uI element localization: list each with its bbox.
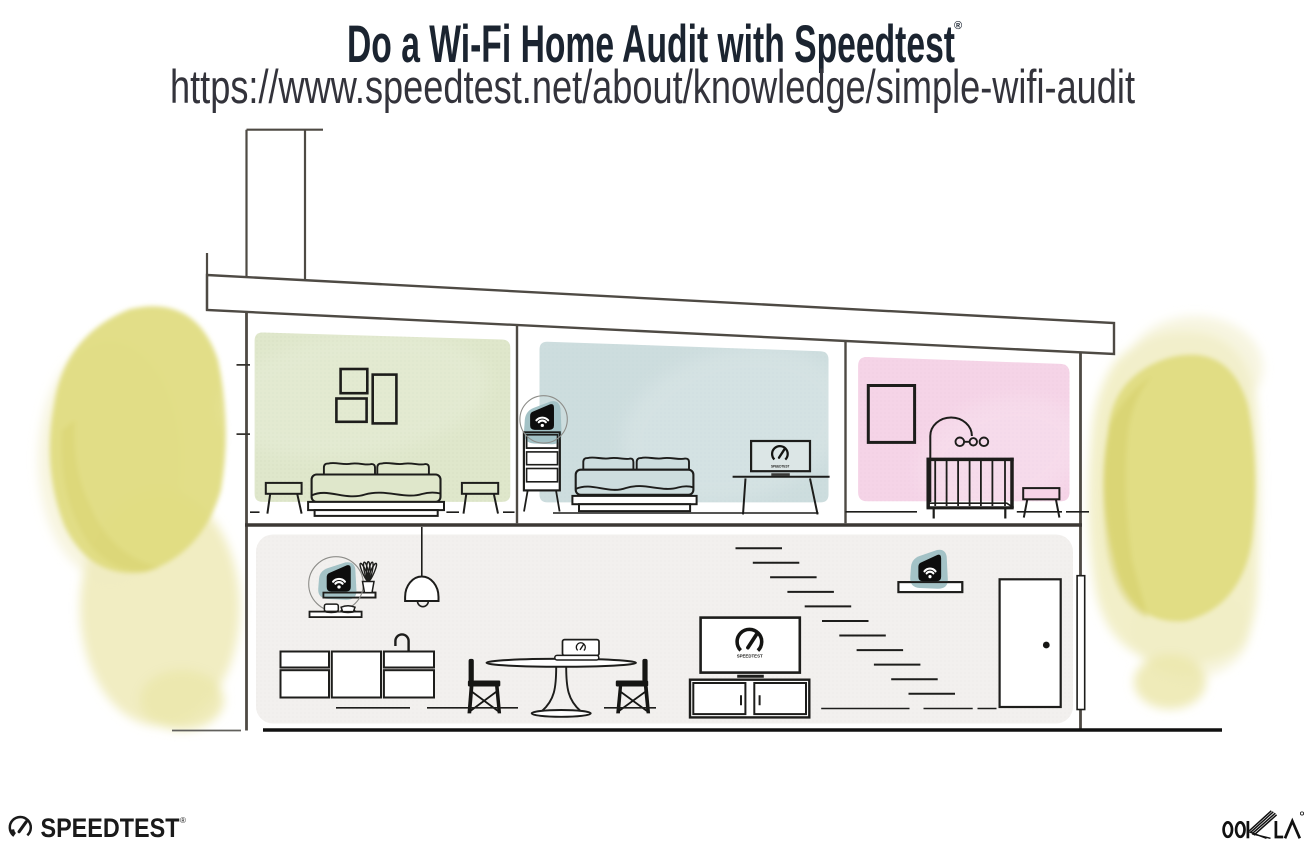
- svg-text:SPEEDTEST: SPEEDTEST: [771, 464, 790, 468]
- svg-text:https://www.speedtest.net/abou: https://www.speedtest.net/about/knowledg…: [170, 60, 1135, 113]
- svg-text:SPEEDTEST: SPEEDTEST: [41, 813, 180, 843]
- svg-text:®: ®: [954, 20, 962, 32]
- svg-text:SPEEDTEST: SPEEDTEST: [737, 654, 763, 659]
- svg-text:®: ®: [180, 816, 186, 825]
